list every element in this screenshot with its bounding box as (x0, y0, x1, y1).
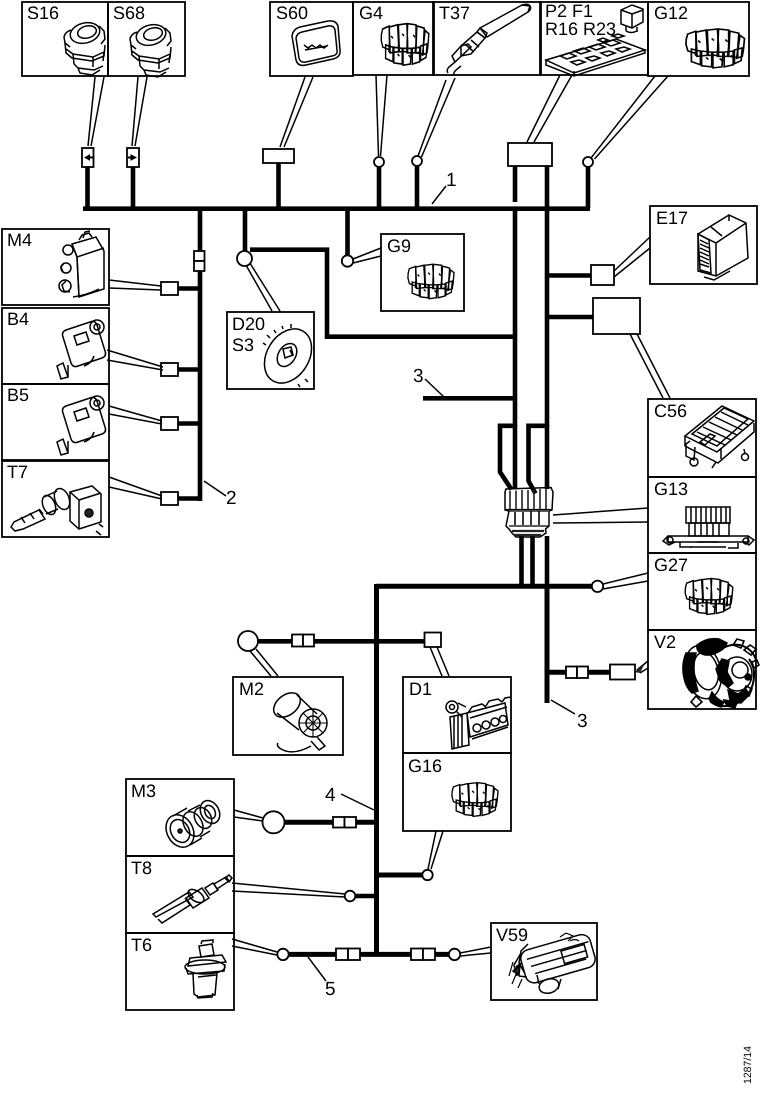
svg-text:R16 R23: R16 R23 (545, 19, 616, 39)
svg-text:1: 1 (446, 170, 457, 191)
svg-text:T37: T37 (439, 3, 470, 23)
svg-text:S16: S16 (27, 3, 59, 23)
svg-text:4: 4 (325, 785, 336, 806)
svg-text:M3: M3 (131, 781, 156, 801)
svg-text:T8: T8 (131, 858, 152, 878)
svg-text:G4: G4 (359, 3, 383, 23)
svg-text:S3: S3 (232, 335, 254, 355)
svg-text:G9: G9 (387, 236, 411, 256)
svg-text:D1: D1 (409, 679, 432, 699)
svg-text:V2: V2 (654, 632, 676, 652)
svg-text:S60: S60 (276, 3, 308, 23)
svg-text:C56: C56 (654, 401, 687, 421)
svg-text:2: 2 (226, 488, 237, 509)
svg-text:G16: G16 (408, 756, 442, 776)
svg-text:V59: V59 (496, 925, 528, 945)
svg-text:G13: G13 (654, 479, 688, 499)
svg-text:1287/14: 1287/14 (742, 1046, 754, 1084)
svg-text:3: 3 (413, 366, 424, 387)
svg-text:E17: E17 (656, 208, 688, 228)
svg-text:M2: M2 (239, 679, 264, 699)
svg-text:M4: M4 (7, 230, 32, 250)
svg-text:P2 F1: P2 F1 (545, 1, 593, 21)
svg-text:G27: G27 (654, 555, 688, 575)
svg-text:B5: B5 (7, 385, 29, 405)
svg-text:T7: T7 (7, 462, 28, 482)
svg-text:D20: D20 (232, 314, 265, 334)
svg-text:3: 3 (577, 711, 588, 732)
svg-text:B4: B4 (7, 309, 29, 329)
svg-text:T6: T6 (131, 935, 152, 955)
svg-text:5: 5 (325, 979, 336, 1000)
svg-text:G12: G12 (654, 3, 688, 23)
svg-text:S68: S68 (113, 3, 145, 23)
